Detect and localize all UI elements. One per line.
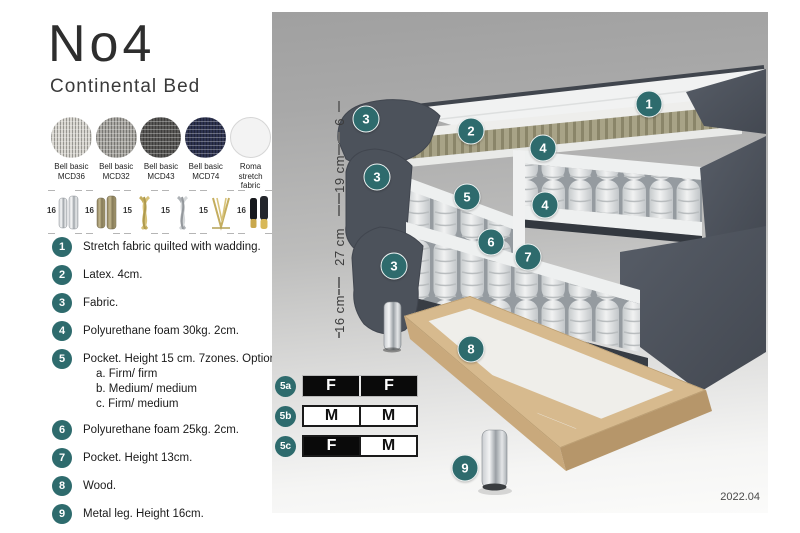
diagram-badge-6: 6 (478, 229, 505, 256)
leg-option: 15 (123, 188, 161, 238)
firmness-row-5b: 5b M M (275, 405, 418, 427)
leg-height-label: 15 (199, 206, 208, 215)
firmness-row-5c: 5c F M (275, 435, 418, 457)
fabric-name: Roma (228, 162, 273, 172)
item-text: Stretch fabric quilted with wadding. (83, 237, 261, 257)
diagram-badge-2: 2 (458, 118, 485, 145)
fabric-swatch-image (96, 117, 137, 158)
list-item: 7 Pocket. Height 13cm. (52, 448, 280, 468)
item-number-badge: 3 (52, 293, 72, 313)
item-text: Polyurethane foam 30kg. 2cm. (83, 321, 239, 341)
fabric-swatch-image (185, 117, 226, 158)
firmness-cell: M (304, 407, 359, 425)
list-item: 5 Pocket. Height 15 cm. 7zones. Option: (52, 349, 280, 369)
firmness-cell: F (361, 376, 417, 396)
leg-height-label: 16 (47, 206, 56, 215)
diagram-badge-3: 3 (381, 253, 408, 280)
leg-option: 16 (237, 188, 275, 238)
pocket-option: b. Medium/ medium (96, 382, 280, 397)
dimension-tick (338, 193, 340, 204)
fabric-swatch: Bell basic MCD74 (183, 117, 228, 191)
fabric-code: MCD74 (189, 172, 223, 182)
dimension-segment: 16 cm (326, 289, 352, 338)
leg-height-label: 16 (237, 206, 246, 215)
item-number-badge: 7 (52, 448, 72, 468)
item-text: Polyurethane foam 25kg. 2cm. (83, 420, 239, 440)
fabric-swatch-label: Roma stretch fabric (228, 162, 273, 191)
firmness-badge: 5c (275, 436, 296, 457)
fabric-name: Bell basic (54, 162, 88, 172)
dimension-tick (338, 277, 340, 288)
cylinder-wood-leg-icon (94, 193, 120, 233)
diagram-badge-1: 1 (636, 91, 663, 118)
diagram-badge-3: 3 (353, 106, 380, 133)
fabric-swatch: Bell basic MCD32 (94, 117, 139, 191)
dimension-tick (338, 289, 340, 295)
fabric-swatch-label: Bell basic MCD36 (54, 162, 88, 181)
fabric-swatch-row: Bell basic MCD36 Bell basic MCD32 Bell b… (49, 117, 273, 191)
item-number-badge: 6 (52, 420, 72, 440)
dimension-tick (338, 332, 340, 338)
firmness-table: F F (302, 375, 418, 397)
firmness-cell: F (303, 376, 359, 396)
fabric-swatch-image (51, 117, 92, 158)
item-text: Wood. (83, 476, 116, 496)
firmness-table: F M (302, 435, 418, 457)
item-text: Pocket. Height 15 cm. 7zones. Option: (83, 349, 279, 369)
product-subtitle: Continental Bed (50, 76, 200, 98)
firmness-row-5a: 5a F F (275, 375, 418, 397)
product-title: No4 (48, 14, 155, 74)
leg-height-label: 16 (85, 206, 94, 215)
hairpin-gold-leg-icon (208, 193, 234, 233)
item-number-badge: 9 (52, 504, 72, 524)
twisted-gold-leg-icon (132, 193, 158, 233)
item-number-badge: 1 (52, 237, 72, 257)
pocket-option: a. Firm/ firm (96, 367, 280, 382)
dimension-tick (338, 205, 340, 216)
pocket-option: c. Firm/ medium (96, 397, 280, 412)
diagram-badge-9: 9 (452, 455, 479, 482)
list-item: 2 Latex. 4cm. (52, 265, 280, 285)
fabric-name: Bell basic (99, 162, 133, 172)
fabric-swatch-label: Bell basic MCD32 (99, 162, 133, 181)
leg-options-row: 16 16 15 15 (47, 188, 275, 238)
fabric-swatch-label: Bell basic MCD74 (189, 162, 223, 181)
list-item: 4 Polyurethane foam 30kg. 2cm. (52, 321, 280, 341)
diagram-badge-5: 5 (454, 184, 481, 211)
item-number-badge: 2 (52, 265, 72, 285)
item-number-badge: 5 (52, 349, 72, 369)
list-item: 6 Polyurethane foam 25kg. 2cm. (52, 420, 280, 440)
list-item: 8 Wood. (52, 476, 280, 496)
leg-option: 15 (161, 188, 199, 238)
list-item: 9 Metal leg. Height 16cm. (52, 504, 280, 524)
dimension-label: 6 (332, 118, 347, 126)
firmness-table: M M (302, 405, 418, 427)
diagram-badge-8: 8 (458, 336, 485, 363)
leg-height-label: 15 (123, 206, 132, 215)
fabric-code: MCD36 (54, 172, 88, 182)
item-text: Metal leg. Height 16cm. (83, 504, 204, 524)
diagram-badge-4: 4 (532, 192, 559, 219)
diagram-badge-3: 3 (364, 164, 391, 191)
firmness-cell: F (304, 437, 359, 455)
item-text: Pocket. Height 13cm. (83, 448, 192, 468)
dimension-label: 16 cm (332, 295, 347, 333)
fabric-swatch-label: Bell basic MCD43 (144, 162, 178, 181)
pocket-options: a. Firm/ firm b. Medium/ medium c. Firm/… (96, 367, 280, 412)
dimension-tick (338, 144, 340, 155)
diagram-badge-7: 7 (515, 244, 542, 271)
fabric-swatch-image (140, 117, 181, 158)
fabric-name: Bell basic (144, 162, 178, 172)
item-number-badge: 8 (52, 476, 72, 496)
diagram-badge-4: 4 (530, 135, 557, 162)
dimension-segment: 6 (326, 101, 352, 143)
leg-option: 15 (199, 188, 237, 238)
firmness-cell: M (361, 407, 416, 425)
leg-option: 16 (85, 188, 123, 238)
dimension-label: 19 cm (332, 155, 347, 193)
firmness-badge: 5b (275, 406, 296, 427)
firmness-cell: M (361, 437, 416, 455)
fabric-swatch: Roma stretch fabric (228, 117, 273, 191)
item-text: Latex. 4cm. (83, 265, 142, 285)
leg-height-label: 15 (161, 206, 170, 215)
dimension-tick (338, 132, 340, 143)
fabric-swatch-image (230, 117, 271, 158)
fabric-swatch: Bell basic MCD43 (139, 117, 184, 191)
fabric-swatch: Bell basic MCD36 (49, 117, 94, 191)
list-item: 1 Stretch fabric quilted with wadding. (52, 237, 280, 257)
twisted-silver-leg-icon (170, 193, 196, 233)
fabric-code: MCD32 (99, 172, 133, 182)
materials-list: 1 Stretch fabric quilted with wadding. 2… (52, 237, 280, 532)
dimension-label: 27 cm (332, 228, 347, 266)
list-item: 3 Fabric. (52, 293, 280, 313)
dimension-tick (338, 101, 340, 112)
item-number-badge: 4 (52, 321, 72, 341)
dimension-segment: 27 cm (326, 205, 352, 288)
fabric-name: Bell basic (189, 162, 223, 172)
leg-option: 16 (47, 188, 85, 238)
firmness-badge: 5a (275, 376, 296, 397)
item-text: Fabric. (83, 293, 118, 313)
version-label: 2022.04 (660, 491, 760, 503)
cylinder-black-gold-leg-icon (246, 193, 272, 233)
dimension-segment: 19 cm (326, 144, 352, 204)
fabric-code: MCD43 (144, 172, 178, 182)
cylinder-chrome-leg-icon (56, 193, 82, 233)
